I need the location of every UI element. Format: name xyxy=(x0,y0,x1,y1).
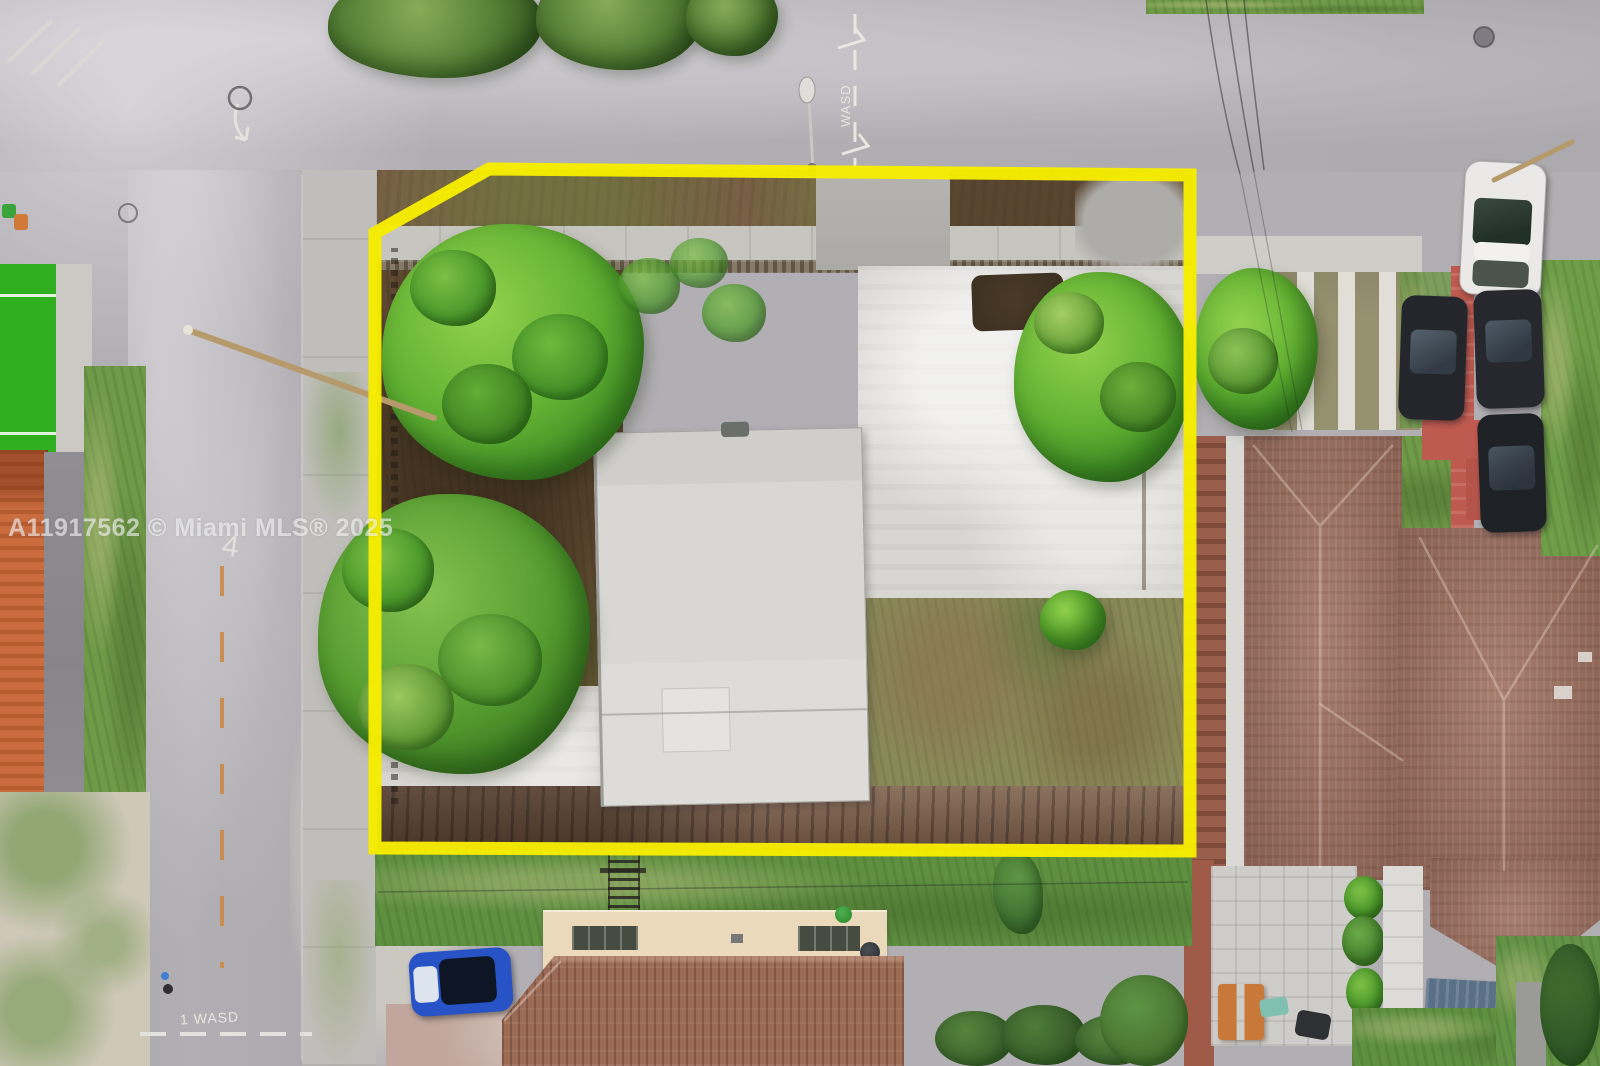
neighbor-roof-east-wing xyxy=(1396,528,1600,890)
left-road xyxy=(128,170,308,1066)
backyard-bush xyxy=(1040,590,1106,650)
top-grass-strip xyxy=(1146,0,1424,14)
black-car xyxy=(1398,295,1468,421)
pavement-patch xyxy=(1075,172,1192,270)
pole-crossarm xyxy=(600,868,646,873)
black-car xyxy=(1473,289,1545,409)
subject-house-roof xyxy=(593,427,870,807)
east-grass-strip xyxy=(1541,260,1600,556)
picnic-table xyxy=(1218,984,1264,1040)
roof-vent xyxy=(1578,652,1592,662)
turf-field xyxy=(0,264,61,464)
sandy-verge xyxy=(0,792,150,1066)
white-wall xyxy=(1383,866,1423,1016)
green-dome-vent xyxy=(835,906,852,923)
sidewalk-grass-patch xyxy=(304,880,374,1066)
orange-roof-structure xyxy=(0,450,48,804)
bottom-house-tile-roof xyxy=(502,956,904,1066)
neighbor-roof-west-wing xyxy=(1244,436,1402,880)
concrete-band xyxy=(1192,236,1422,274)
road-marking-wasd-top: WASD xyxy=(838,75,853,127)
sidewalk-grass-patch xyxy=(304,372,374,522)
patio-object-teal xyxy=(1259,996,1289,1018)
sparse-tree xyxy=(618,238,766,358)
skylight-panel xyxy=(572,926,638,950)
roof-section-light xyxy=(661,687,730,752)
roof-vent xyxy=(721,422,749,438)
aerial-photo: WASD 4 1 WASD A11917562 © Miami MLS® 202… xyxy=(0,0,1600,1066)
driveway-apron xyxy=(816,168,950,270)
black-car xyxy=(1477,413,1547,533)
patio-plants xyxy=(1342,876,1386,1022)
mls-watermark: A11917562 © Miami MLS® 2025 xyxy=(8,516,393,541)
lot-tree-east xyxy=(1014,272,1192,482)
roof-vent xyxy=(1554,686,1572,699)
backyard-grass xyxy=(858,598,1192,792)
roof-vent xyxy=(731,934,743,943)
playground-equipment xyxy=(14,214,28,230)
patio-object-dark xyxy=(1294,1009,1332,1041)
bottom-shrub xyxy=(1100,975,1188,1066)
corner-tree xyxy=(1540,944,1600,1066)
road-marking-wasd-bottom: 1 WASD xyxy=(180,1008,240,1027)
parkway-tree xyxy=(1194,268,1318,430)
blue-car-bottom xyxy=(408,947,514,1018)
roof-seam xyxy=(602,708,867,716)
side-yard-ground xyxy=(1184,436,1230,880)
neighbor-fascia xyxy=(1226,436,1246,880)
skylight-panel xyxy=(798,926,860,951)
white-car xyxy=(1459,160,1548,298)
lot-tree-large xyxy=(382,224,644,480)
west-grass-verge xyxy=(84,366,146,806)
